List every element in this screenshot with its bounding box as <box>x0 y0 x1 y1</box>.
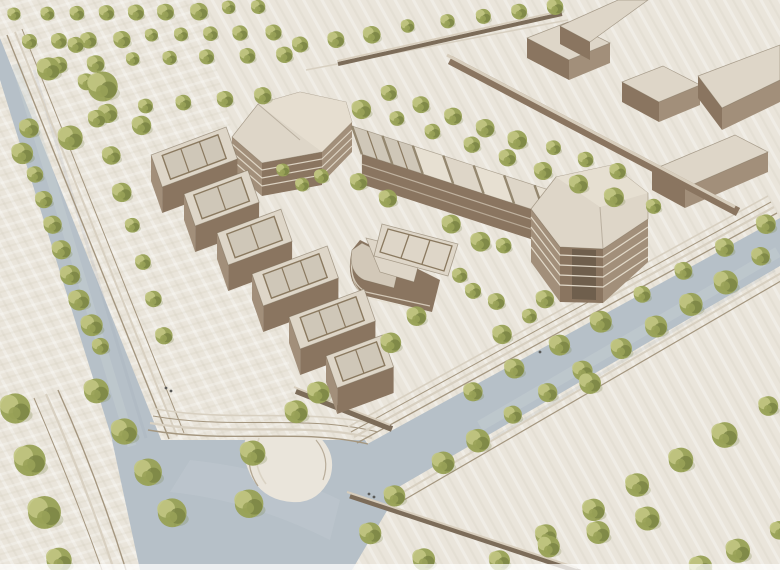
model-photo-frame <box>0 0 780 570</box>
human-figure <box>368 493 371 496</box>
human-figure <box>373 496 376 499</box>
human-figure <box>539 351 542 354</box>
site-model-image <box>0 0 780 570</box>
human-figure <box>165 387 168 390</box>
photo-edge-fade <box>0 564 780 570</box>
human-figure <box>170 390 173 393</box>
